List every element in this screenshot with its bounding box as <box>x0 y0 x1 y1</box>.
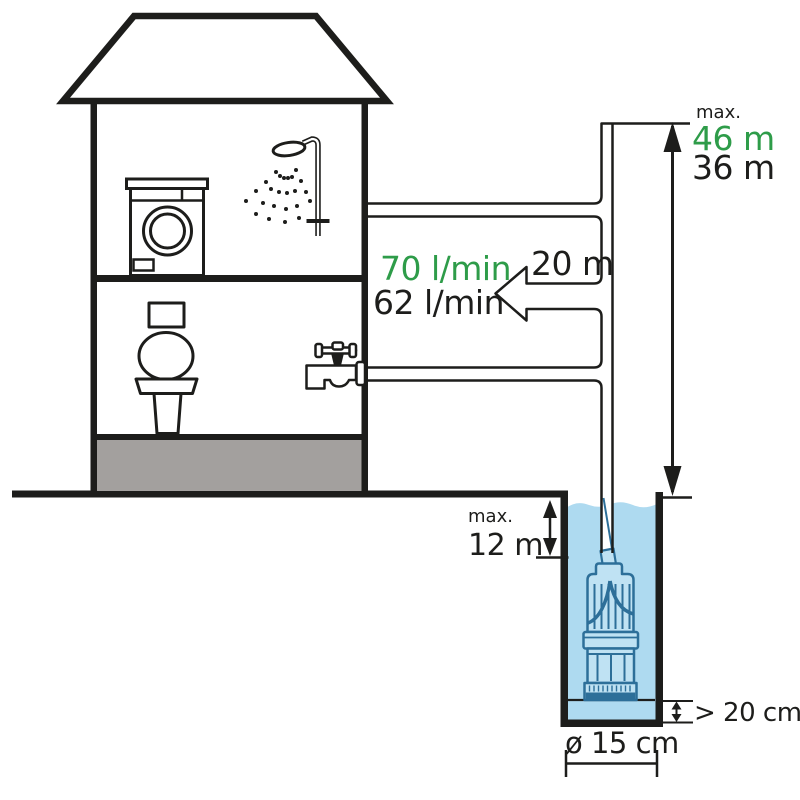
ground-and-well-walls <box>12 492 663 723</box>
tap-stem <box>331 353 344 366</box>
diagram-canvas <box>0 0 800 800</box>
flow-value-green: 70 l/min <box>380 252 511 285</box>
pipe-lower-top-edge <box>368 317 602 368</box>
roof <box>63 16 387 101</box>
tap-handle-knob <box>333 343 344 350</box>
pipe-top-and-upper-branch <box>368 124 690 204</box>
diameter-label: ø 15 cm <box>565 729 679 758</box>
foundation <box>97 440 362 491</box>
tap-flange <box>357 362 366 385</box>
clearance-dimension <box>660 701 693 723</box>
shower-head <box>272 140 305 157</box>
washing-machine-icon <box>127 179 208 276</box>
flow-value-black: 62 l/min <box>373 286 504 319</box>
toilet-seat <box>136 379 197 394</box>
depth-max-label: max. <box>468 508 513 526</box>
head-arrow-up <box>664 122 682 152</box>
shower-icon <box>244 139 330 236</box>
pump-collar <box>584 632 639 649</box>
toilet-icon <box>136 303 197 434</box>
clearance-label: > 20 cm <box>694 700 800 726</box>
depth-value-label: 12 m <box>468 531 543 561</box>
pump-foot-band <box>586 693 636 700</box>
tap-icon <box>307 343 366 389</box>
clearance-arrow-down <box>672 714 682 722</box>
head-arrow-down <box>664 466 682 496</box>
head-value-black: 36 m <box>692 151 775 184</box>
pump-installation-diagram: max. 46 m 36 m 70 l/min 62 l/min 20 m ma… <box>0 0 800 800</box>
clearance-arrow-up <box>672 702 682 710</box>
depth-arrow-down <box>543 538 557 556</box>
tap-handle-left-cap <box>316 344 323 357</box>
washer-drawer <box>134 260 154 271</box>
toilet-bowl <box>139 333 193 380</box>
tap-body-and-spout <box>307 366 357 389</box>
toilet-pedestal <box>154 394 181 434</box>
supply-pipe <box>368 124 690 554</box>
shower-spray <box>244 168 312 224</box>
depth-arrow-up <box>543 500 557 518</box>
toilet-cistern <box>149 303 184 327</box>
tap-handle-right-cap <box>350 344 357 357</box>
pipe-length-label: 20 m <box>531 247 614 280</box>
house <box>63 16 387 494</box>
head-dimension <box>659 122 692 498</box>
